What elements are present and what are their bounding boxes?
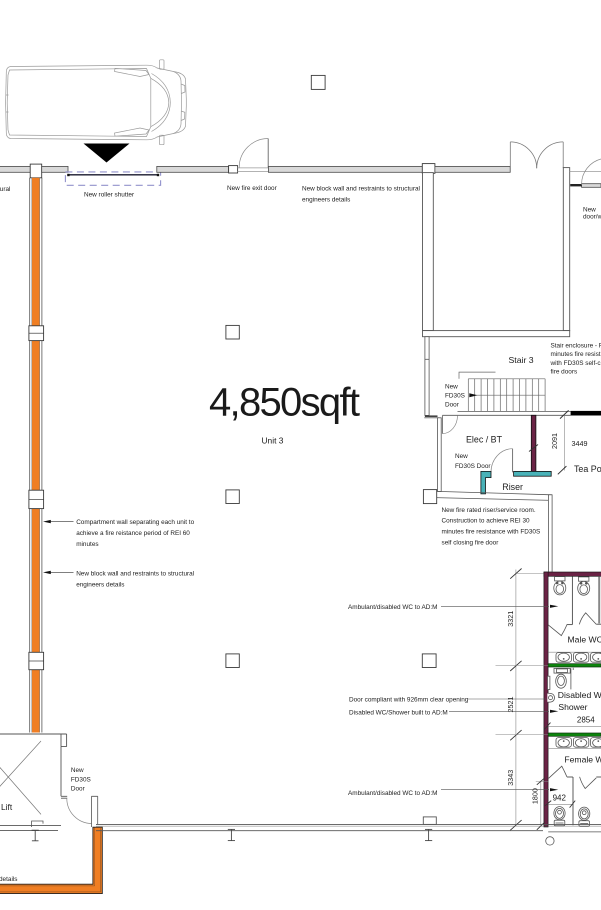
svg-text:FD30S Door: FD30S Door xyxy=(455,463,491,470)
svg-text:Compartment wall separating ea: Compartment wall separating each unit to xyxy=(76,519,194,526)
svg-text:New fire rated riser/service r: New fire rated riser/service room. xyxy=(442,507,536,514)
svg-text:Female WCs: Female WCs xyxy=(564,754,601,764)
svg-text:Male WCs: Male WCs xyxy=(568,635,601,645)
svg-text:fire doors: fire doors xyxy=(551,369,578,376)
svg-text:minutes fire resista: minutes fire resista xyxy=(551,351,601,358)
svg-text:Construction to achieve REI 30: Construction to achieve REI 30 xyxy=(442,518,531,525)
svg-text:Lift: Lift xyxy=(1,802,13,812)
svg-text:4,850sqft: 4,850sqft xyxy=(209,381,360,425)
svg-text:self closing fire door: self closing fire door xyxy=(442,539,500,546)
svg-text:Unit 3: Unit 3 xyxy=(262,435,284,445)
svg-text:New block wall and restraints: New block wall and restraints to structu… xyxy=(76,570,194,577)
svg-text:Ambulant/disabled WC to AD:M: Ambulant/disabled WC to AD:M xyxy=(348,790,438,797)
svg-text:engineers details: engineers details xyxy=(302,197,350,204)
svg-text:3449: 3449 xyxy=(572,439,588,448)
svg-text:Ambulant/disabled WC to AD:M: Ambulant/disabled WC to AD:M xyxy=(348,604,438,611)
svg-text:Stair enclosure - Pro: Stair enclosure - Pro xyxy=(551,342,601,349)
svg-text:New: New xyxy=(445,383,458,390)
svg-text:New block wall and restraints: New block wall and restraints to structu… xyxy=(302,186,420,193)
svg-text:FD30S: FD30S xyxy=(445,392,465,399)
svg-text:New fire exit door: New fire exit door xyxy=(227,185,278,192)
svg-text:2091: 2091 xyxy=(550,433,559,449)
svg-text:minutes fire resistance with F: minutes fire resistance with FD30S xyxy=(442,529,541,536)
svg-text:3343: 3343 xyxy=(506,770,515,786)
svg-text:Disabled WC/Shower built to AD: Disabled WC/Shower built to AD:M xyxy=(349,709,448,716)
svg-text:Disabled WC: Disabled WC xyxy=(558,690,601,700)
svg-text:minutes: minutes xyxy=(76,541,98,548)
svg-text:Stair 3: Stair 3 xyxy=(509,355,534,365)
svg-text:New roller shutter: New roller shutter xyxy=(84,191,135,198)
svg-text:Shower: Shower xyxy=(558,702,587,712)
svg-text:Door compliant with 926mm clea: Door compliant with 926mm clear opening xyxy=(349,697,469,704)
svg-text:achieve a fire reistance perio: achieve a fire reistance period of REI 6… xyxy=(76,530,190,537)
svg-text:Door: Door xyxy=(71,786,86,793)
svg-text:New: New xyxy=(583,206,596,213)
svg-text:New: New xyxy=(455,453,468,460)
svg-text:Door: Door xyxy=(445,401,460,408)
svg-text:New: New xyxy=(71,767,84,774)
svg-text:1800: 1800 xyxy=(530,788,539,804)
svg-text:with FD30S self-cl: with FD30S self-cl xyxy=(550,360,601,367)
svg-text:tural: tural xyxy=(0,186,10,193)
svg-text:Elec / BT: Elec / BT xyxy=(466,434,503,444)
svg-text:2854: 2854 xyxy=(577,715,595,724)
svg-text:Tea Point: Tea Point xyxy=(574,464,601,474)
svg-text:FD30S: FD30S xyxy=(71,776,91,783)
svg-text:Riser: Riser xyxy=(502,482,523,492)
svg-text:942: 942 xyxy=(553,794,567,803)
svg-text:engineers details: engineers details xyxy=(76,581,124,588)
svg-text:details: details xyxy=(0,876,17,883)
svg-text:door/w: door/w xyxy=(583,214,601,221)
svg-text:3321: 3321 xyxy=(506,611,515,627)
